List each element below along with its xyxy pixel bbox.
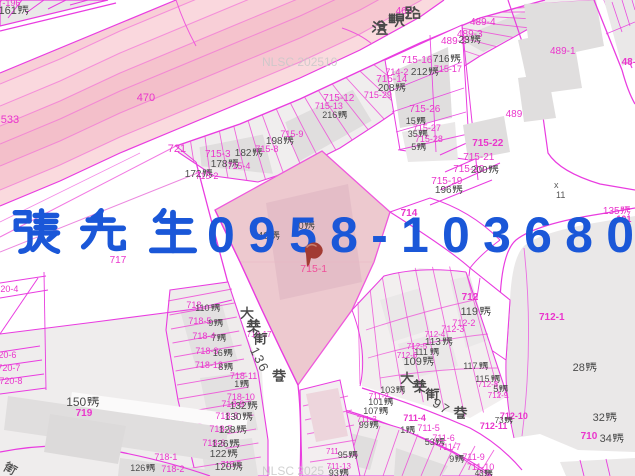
- svg-text:43: 43: [475, 469, 484, 476]
- svg-text:11: 11: [556, 190, 565, 200]
- svg-text:711-5: 711-5: [417, 423, 439, 433]
- svg-text:715-28: 715-28: [415, 134, 443, 144]
- svg-text:120: 120: [215, 462, 232, 473]
- svg-text:489: 489: [506, 109, 523, 120]
- svg-text:715-4: 715-4: [227, 161, 250, 171]
- svg-text:110: 110: [195, 303, 209, 313]
- svg-text:711-7: 711-7: [438, 442, 460, 452]
- svg-text:9: 9: [449, 454, 454, 464]
- svg-text:117: 117: [463, 361, 477, 371]
- svg-text:NLSC 202510: NLSC 202510: [262, 55, 338, 69]
- svg-text:32: 32: [593, 412, 605, 424]
- svg-text:NLSC 2025 1: NLSC 2025 1: [262, 464, 334, 476]
- svg-text:720-6: 720-6: [0, 350, 16, 360]
- svg-text:0958-103680: 0958-103680: [207, 207, 634, 263]
- svg-text:721: 721: [168, 143, 186, 155]
- svg-text:711-9: 711-9: [462, 452, 484, 462]
- svg-text:712-9: 712-9: [488, 391, 509, 400]
- svg-text:720-7: 720-7: [0, 363, 20, 373]
- svg-text:9: 9: [208, 318, 213, 328]
- svg-text:28: 28: [573, 362, 585, 374]
- svg-text:718-1: 718-1: [154, 452, 177, 462]
- svg-text:533: 533: [1, 114, 19, 126]
- svg-text:715-16: 715-16: [401, 55, 433, 66]
- svg-text:715-9: 715-9: [280, 129, 303, 139]
- svg-text:715-22: 715-22: [472, 138, 504, 149]
- svg-text:712-4: 712-4: [425, 330, 446, 339]
- svg-text:720-8: 720-8: [0, 376, 22, 386]
- svg-text:182: 182: [235, 148, 252, 159]
- svg-text:712-1: 712-1: [539, 312, 565, 323]
- svg-text:212: 212: [411, 67, 428, 78]
- svg-text:715-2: 715-2: [195, 171, 218, 181]
- svg-text:712: 712: [462, 292, 479, 303]
- svg-text:712-6: 712-6: [397, 351, 418, 360]
- svg-text:128: 128: [219, 425, 236, 436]
- svg-text:712-10: 712-10: [500, 411, 528, 421]
- svg-text:130: 130: [225, 412, 242, 423]
- svg-text:73: 73: [495, 416, 504, 425]
- svg-text:23: 23: [459, 35, 471, 46]
- svg-text:715-1: 715-1: [300, 263, 327, 275]
- svg-text:126: 126: [130, 463, 145, 473]
- svg-text:8: 8: [218, 362, 223, 372]
- svg-text:178: 178: [211, 159, 228, 170]
- svg-text:16: 16: [213, 348, 223, 358]
- svg-text:7: 7: [211, 333, 216, 343]
- svg-text:717: 717: [110, 255, 127, 266]
- svg-text:720-4: 720-4: [0, 284, 18, 294]
- svg-text:x: x: [554, 180, 559, 190]
- svg-text:712-5: 712-5: [407, 342, 428, 351]
- svg-text:489-4: 489-4: [470, 17, 496, 28]
- svg-text:1: 1: [234, 379, 239, 389]
- svg-text:719: 719: [76, 408, 93, 419]
- svg-text:489-1: 489-1: [550, 46, 576, 57]
- svg-text:119: 119: [461, 306, 479, 318]
- svg-text:150: 150: [66, 395, 86, 409]
- svg-text:216: 216: [322, 110, 337, 120]
- svg-text:48-: 48-: [622, 57, 635, 68]
- svg-text:715-21: 715-21: [463, 152, 495, 163]
- svg-text:715-26: 715-26: [409, 104, 441, 115]
- svg-text:1: 1: [400, 425, 405, 435]
- svg-text:715-29: 715-29: [364, 90, 392, 100]
- svg-text:470: 470: [137, 92, 155, 104]
- svg-text:196: 196: [435, 185, 452, 196]
- svg-text:710: 710: [581, 431, 598, 442]
- svg-text:5: 5: [411, 142, 416, 152]
- svg-text:99: 99: [359, 420, 369, 430]
- svg-text:161: 161: [0, 5, 17, 17]
- svg-text:93: 93: [329, 468, 339, 476]
- svg-text:122: 122: [210, 449, 227, 460]
- svg-text:200: 200: [471, 165, 488, 176]
- svg-text:34: 34: [600, 433, 612, 445]
- svg-text:718-2: 718-2: [161, 464, 184, 474]
- svg-text:711-4: 711-4: [403, 413, 426, 423]
- svg-text:95: 95: [338, 450, 348, 460]
